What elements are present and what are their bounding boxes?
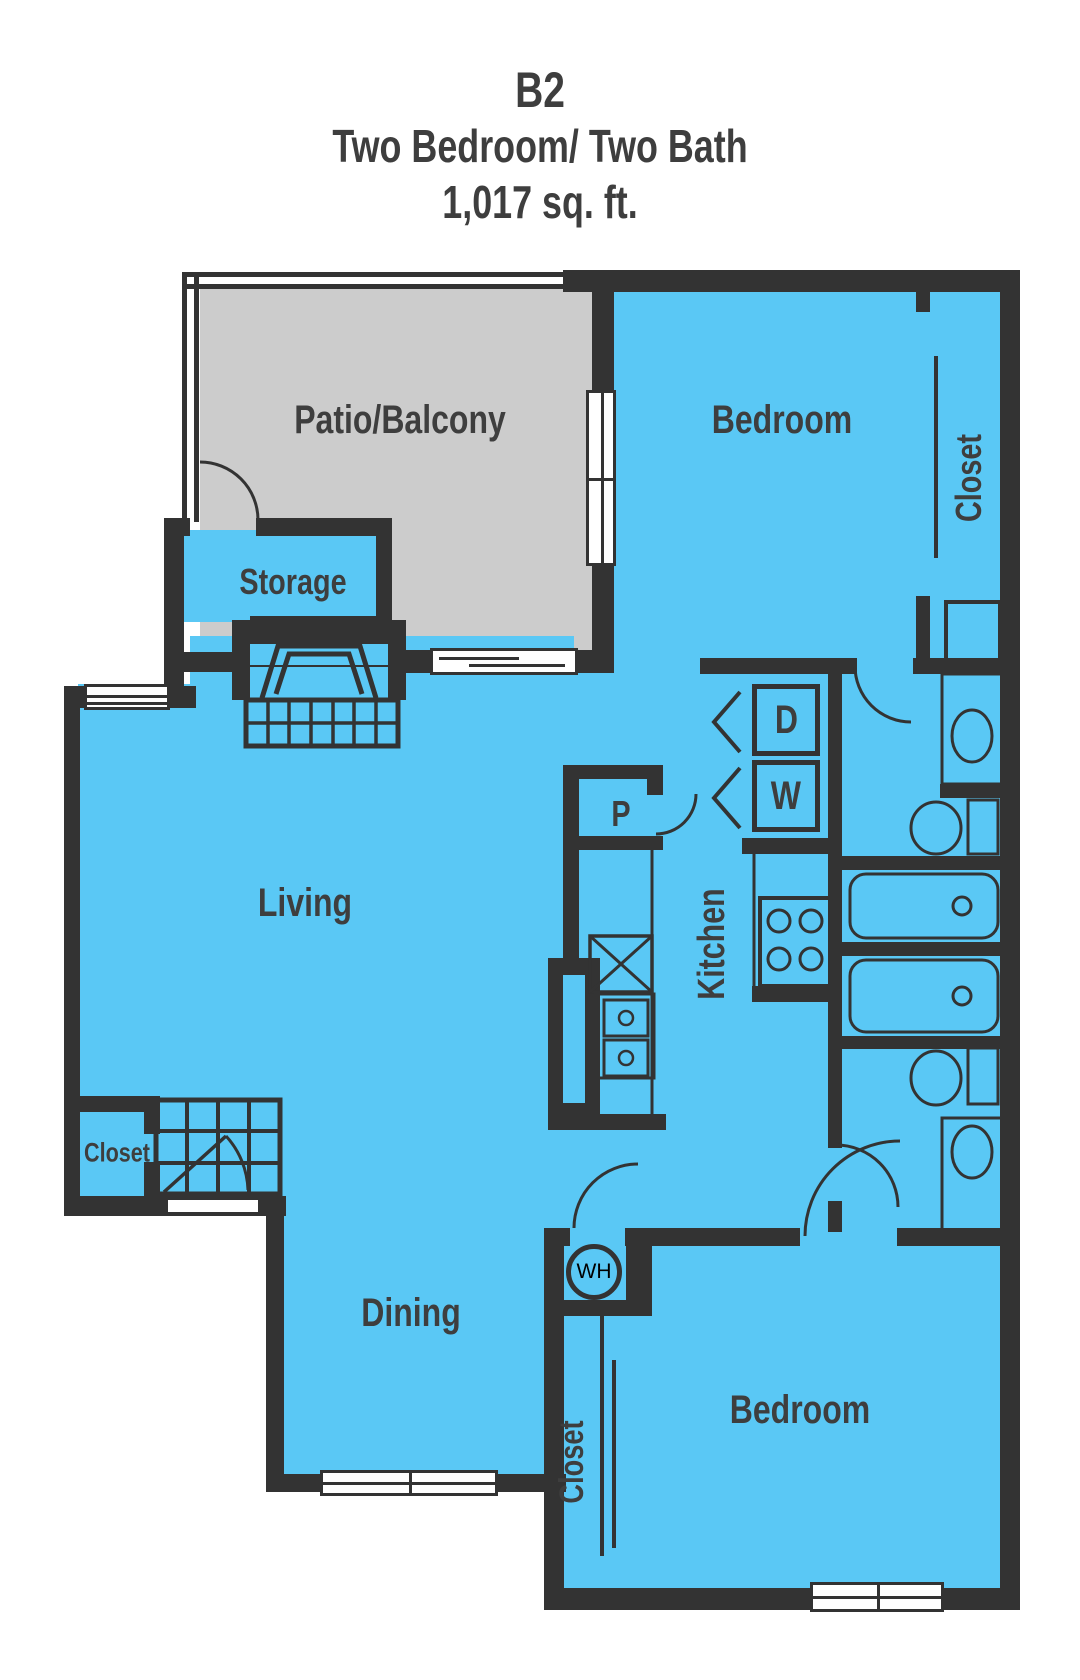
water-heater-label: WH bbox=[577, 1260, 612, 1284]
window bbox=[320, 1470, 498, 1496]
fireplace-surround bbox=[388, 620, 406, 700]
living-label: Living bbox=[258, 883, 352, 923]
closet-top-label: Closet bbox=[951, 434, 987, 522]
plan-type: Two Bedroom/ Two Bath bbox=[332, 119, 747, 173]
patio-rail bbox=[182, 272, 187, 522]
wall bbox=[828, 1201, 842, 1232]
dryer-label: D bbox=[774, 700, 797, 740]
wall bbox=[164, 518, 190, 536]
floor-plan-page: B2 Two Bedroom/ Two Bath 1,017 sq. ft. bbox=[0, 0, 1080, 1680]
wall bbox=[647, 765, 663, 795]
kitchen-label: Kitchen bbox=[693, 888, 731, 999]
window bbox=[84, 684, 170, 710]
bedroom-top-label: Bedroom bbox=[712, 400, 852, 440]
patio-label: Patio/Balcony bbox=[294, 400, 506, 440]
wall bbox=[940, 784, 1006, 798]
wall bbox=[563, 836, 579, 966]
pantry-label: P bbox=[611, 796, 630, 832]
patio-rail bbox=[182, 284, 590, 289]
wall bbox=[258, 1196, 286, 1216]
wall bbox=[406, 650, 432, 673]
dryer-box: D bbox=[752, 684, 820, 756]
closet-bottom-label: Closet bbox=[555, 1420, 589, 1503]
wall bbox=[544, 1228, 564, 1610]
washer-label: W bbox=[771, 776, 801, 816]
patio-rail bbox=[194, 272, 199, 522]
wall bbox=[563, 270, 1020, 292]
wall bbox=[256, 518, 392, 536]
bar-counter bbox=[560, 972, 588, 1106]
wall bbox=[742, 838, 842, 854]
wall bbox=[144, 1096, 160, 1134]
washer-box: W bbox=[752, 760, 820, 832]
dining-label: Dining bbox=[361, 1293, 461, 1333]
living-floor bbox=[78, 684, 574, 1214]
closet-shelf bbox=[944, 600, 1002, 662]
plan-code: B2 bbox=[515, 61, 565, 119]
wall bbox=[828, 658, 842, 1148]
window bbox=[586, 390, 616, 566]
wall bbox=[376, 518, 392, 630]
water-heater-icon: WH bbox=[566, 1244, 622, 1300]
wall bbox=[897, 1228, 1006, 1246]
wall bbox=[144, 1162, 160, 1200]
window bbox=[810, 1582, 944, 1612]
wall bbox=[544, 1228, 570, 1246]
wall bbox=[836, 1036, 1006, 1049]
patio-rail bbox=[182, 272, 590, 277]
bedroom-bottom-label: Bedroom bbox=[730, 1390, 870, 1430]
plan-area: 1,017 sq. ft. bbox=[442, 175, 637, 229]
wall bbox=[544, 1588, 1020, 1610]
wall bbox=[916, 596, 930, 662]
fireplace-surround bbox=[250, 616, 388, 644]
wall bbox=[1000, 270, 1020, 1610]
wall bbox=[752, 986, 842, 1002]
dining-floor bbox=[268, 1210, 572, 1480]
fireplace-surround bbox=[232, 620, 250, 700]
wall bbox=[836, 856, 1006, 870]
wall bbox=[916, 292, 930, 312]
wall bbox=[544, 1300, 652, 1316]
wall bbox=[266, 1210, 284, 1490]
wall bbox=[64, 688, 80, 1216]
storage-label: Storage bbox=[239, 564, 346, 600]
wall bbox=[548, 1114, 666, 1130]
entry-door-threshold bbox=[168, 1196, 258, 1216]
wall bbox=[836, 942, 1006, 956]
entry-closet-label: Closet bbox=[84, 1140, 150, 1167]
sliding-door bbox=[430, 648, 578, 675]
